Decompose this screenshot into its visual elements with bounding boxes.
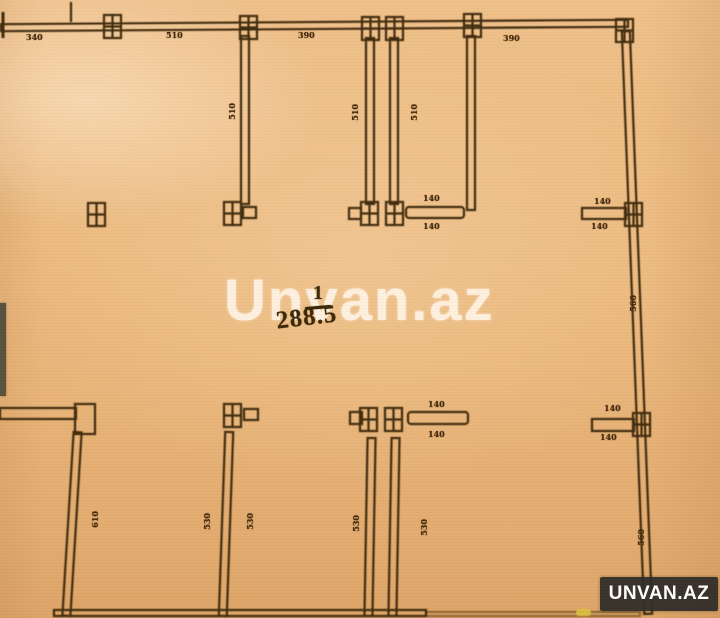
stub-upper-left-column xyxy=(243,207,256,218)
stub-upper-center-left xyxy=(349,208,361,219)
column-marker xyxy=(104,15,121,38)
wall-upper-2 xyxy=(366,38,374,204)
column-marker xyxy=(88,203,105,226)
dim-label: 530 xyxy=(420,519,428,536)
wall-bottom xyxy=(54,610,426,616)
column-marker xyxy=(385,408,402,431)
wall-upper-4 xyxy=(467,36,475,210)
floorplan-photo: Unvan.az 1 288.5 340 510 390 390 510 510… xyxy=(0,0,720,618)
wall-right xyxy=(622,31,652,614)
dim-label: 140 xyxy=(423,194,440,202)
dim-label: 510 xyxy=(351,104,359,121)
wall-lower-left-horizontal xyxy=(0,408,76,419)
stub-upper-center-right xyxy=(406,207,464,218)
column-marker xyxy=(386,202,403,225)
column-marker xyxy=(224,202,241,225)
dim-label: 140 xyxy=(428,430,445,438)
yellow-stain xyxy=(576,609,591,616)
dim-label: 560 xyxy=(629,295,637,312)
column-marker xyxy=(361,202,378,225)
wall-lower-2 xyxy=(219,432,233,616)
watermark-text: Unvan.az xyxy=(224,272,495,330)
dim-label: 530 xyxy=(246,513,254,530)
dim-label: 510 xyxy=(166,31,183,39)
dim-label: 140 xyxy=(423,222,440,230)
dim-label: 140 xyxy=(591,222,608,230)
dim-label: 530 xyxy=(203,513,211,530)
column-marker xyxy=(464,14,481,37)
column-marker xyxy=(224,404,241,427)
wall-lower-1 xyxy=(62,432,81,616)
wall-lower-3 xyxy=(364,438,375,616)
wall-upper-1 xyxy=(241,36,249,204)
dim-label: 510 xyxy=(410,104,418,121)
dim-label: 390 xyxy=(503,34,520,42)
dim-label: 610 xyxy=(91,511,99,528)
stub-lower-left-column xyxy=(244,409,258,420)
dim-label: 340 xyxy=(26,33,43,41)
dim-label: 140 xyxy=(600,433,617,441)
wall-lower-4 xyxy=(388,438,399,616)
dim-label: 510 xyxy=(228,103,236,120)
stub-lower-center-right xyxy=(408,412,468,424)
unvan-logo-text: UNVAN.AZ xyxy=(609,583,710,605)
unvan-logo: UNVAN.AZ xyxy=(600,577,718,611)
stub-lower-right xyxy=(592,419,634,431)
dim-label: 560 xyxy=(637,529,645,546)
wall-bottom-faint xyxy=(426,612,640,616)
dim-label: 140 xyxy=(604,404,621,412)
corner-post-lower-left xyxy=(75,404,95,434)
dim-label: 140 xyxy=(428,400,445,408)
dim-label: 390 xyxy=(298,31,315,39)
wall-upper-3 xyxy=(390,38,398,204)
stub-upper-right xyxy=(582,208,626,219)
column-marker xyxy=(362,17,379,40)
photo-edge-artifact xyxy=(0,303,6,396)
dim-label: 140 xyxy=(594,197,611,205)
dim-label: 530 xyxy=(352,515,360,532)
